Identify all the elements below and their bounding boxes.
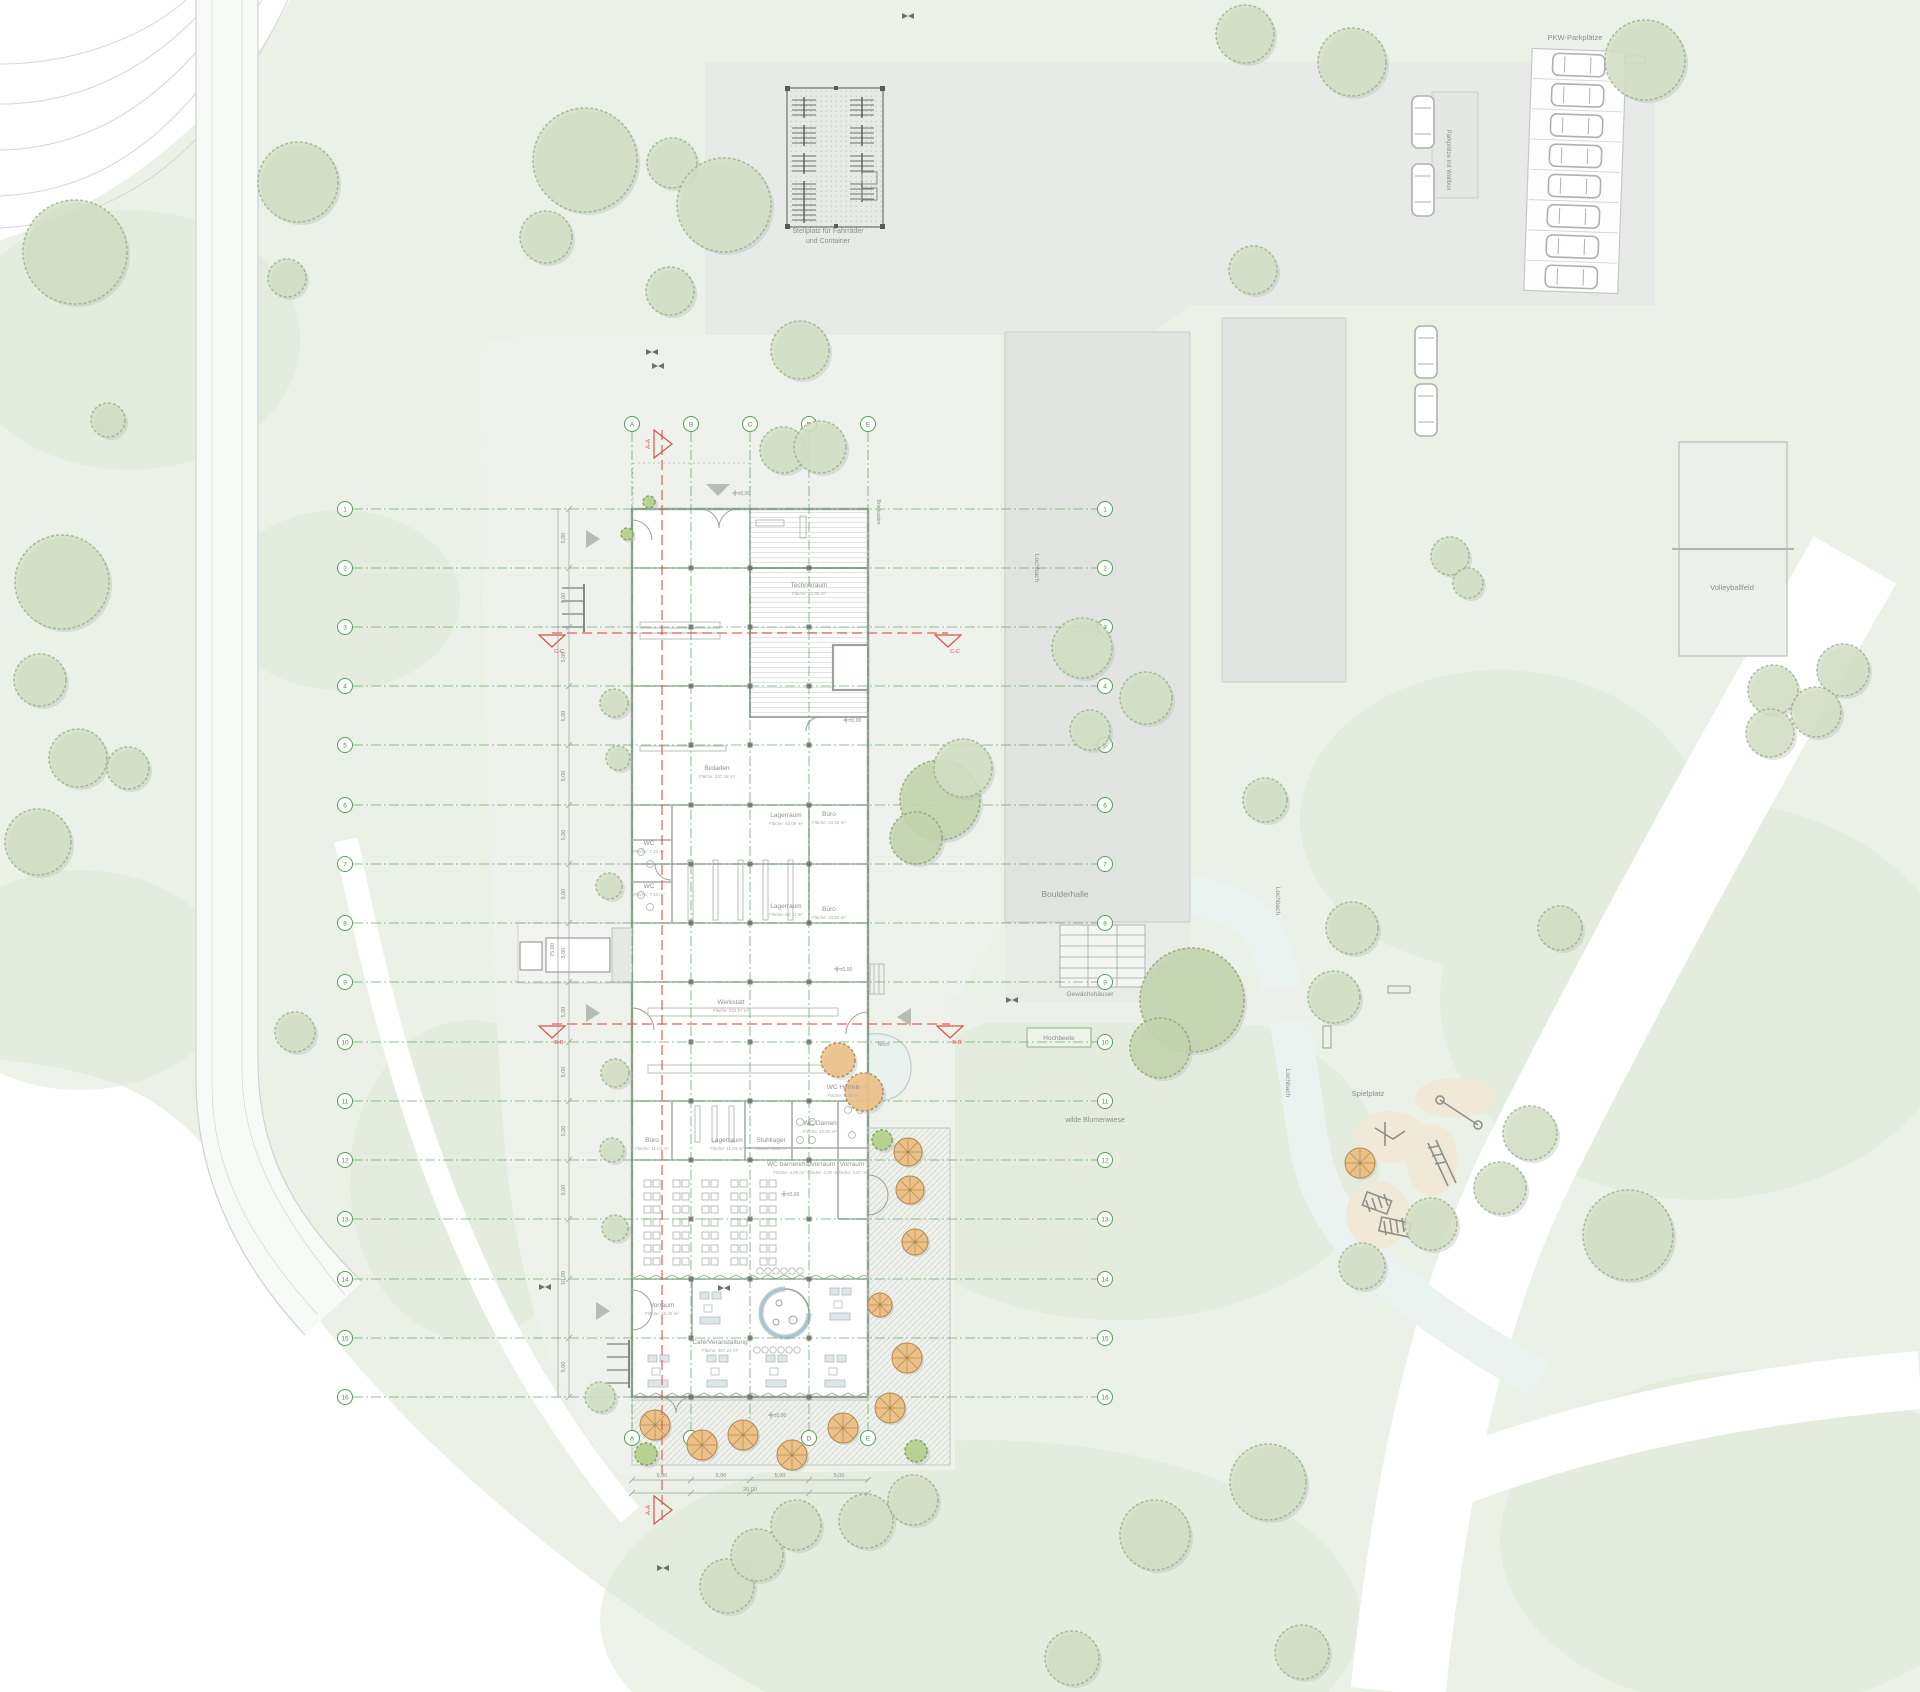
column-node: [807, 921, 812, 926]
column-node: [807, 1277, 812, 1282]
grid-bubble-label: 6: [343, 802, 347, 809]
tree: [1605, 20, 1685, 100]
tree: [934, 739, 992, 797]
volleyball-field: [1672, 442, 1794, 656]
grid-bubble-label: 6: [1103, 802, 1107, 809]
tree: [520, 211, 572, 263]
tree: [1120, 672, 1172, 724]
tree: [1326, 902, 1378, 954]
tree: [1748, 665, 1798, 715]
dimension-label: 5,00: [561, 771, 567, 782]
grid-bubble-label: 13: [341, 1216, 349, 1223]
column-node: [748, 921, 753, 926]
grid-bubble-label: 12: [1101, 1157, 1109, 1164]
grid-bubble-label: 16: [1101, 1394, 1109, 1401]
tree: [1243, 778, 1287, 822]
column-node: [748, 1158, 753, 1163]
column-node: [689, 1158, 694, 1163]
room-area-label: Fläche: 367,24 m²: [702, 1348, 739, 1353]
table: [766, 1380, 786, 1387]
section-label: A-A: [646, 1505, 652, 1515]
grid-bubble-label: 11: [342, 1098, 349, 1105]
table: [719, 1355, 728, 1362]
column-node: [689, 980, 694, 985]
ground-layer: [0, 0, 1920, 1692]
elevation-label: ±0,00: [849, 718, 862, 724]
dimension-label: 5,00: [561, 1126, 567, 1137]
table: [652, 1368, 660, 1375]
technik-cell: [833, 645, 868, 690]
shrub: [621, 528, 633, 540]
tree: [596, 873, 622, 899]
tree: [1045, 1631, 1099, 1685]
dimension-label: 5,00: [657, 1473, 668, 1479]
tree: [1746, 709, 1794, 757]
room-label: Vorraum: [650, 1302, 675, 1309]
tree: [275, 1012, 315, 1052]
column-node: [807, 862, 812, 867]
room-label: Büro: [645, 1137, 659, 1144]
room-area-label: Fläche: 237,18 m²: [699, 774, 736, 779]
orange-tree: [845, 1073, 883, 1111]
grid-bubble-label: 1: [343, 506, 347, 513]
column-node: [807, 743, 812, 748]
room-label: WC barrierefrei: [767, 1161, 811, 1168]
car-icon: [1548, 174, 1601, 198]
car-icon: [1412, 96, 1434, 148]
dimension-label: 5,00: [561, 1007, 567, 1018]
column-node: [807, 566, 812, 571]
room-label: WC Damen: [803, 1120, 837, 1127]
table: [660, 1355, 669, 1362]
tree: [794, 421, 846, 473]
room-area-label: Fläche: 2,87 m²: [836, 1170, 868, 1175]
table: [648, 1355, 657, 1362]
site-label: wilde Blumenwiese: [1064, 1117, 1125, 1124]
room-area-label: Fläche: 7,13 m²: [633, 892, 665, 897]
tree: [1318, 28, 1386, 96]
column-node: [748, 684, 753, 689]
column-node: [748, 743, 753, 748]
column-node: [748, 1336, 753, 1341]
site-label: Lochbach: [1274, 887, 1281, 916]
dimension-label: 5,00: [561, 948, 567, 959]
bike-shelter: [785, 86, 885, 229]
room-label: Lagerraum: [770, 812, 801, 819]
room-label: Technikraum: [791, 582, 828, 589]
column-node: [748, 1099, 753, 1104]
column-node: [807, 1336, 812, 1341]
tree: [1130, 1018, 1190, 1078]
room-area-label: Fläche: 12,82 m²: [803, 1129, 837, 1134]
column-node: [748, 1277, 753, 1282]
dimension-label: 5,00: [561, 593, 567, 604]
room-area-label: Fläche: 3,20 m²: [807, 1170, 839, 1175]
table: [700, 1317, 720, 1324]
column-node: [807, 1395, 812, 1400]
car-icon: [1412, 164, 1434, 216]
tree: [1229, 246, 1277, 294]
grid-bubble-label: 10: [1101, 1039, 1109, 1046]
dimension-label: 5,00: [561, 1067, 567, 1078]
tree: [1474, 1162, 1526, 1214]
grid-bubble-label: E: [866, 421, 871, 428]
tree: [1503, 1106, 1557, 1160]
dimension-label: 5,00: [561, 889, 567, 900]
grid-bubble-label: 4: [343, 683, 347, 690]
column-node: [748, 566, 753, 571]
grid-bubble-label: 7: [343, 861, 347, 868]
room-label: WC: [644, 883, 655, 890]
column-node: [748, 862, 753, 867]
tree: [771, 1500, 821, 1550]
tree: [49, 729, 107, 787]
column-node: [689, 803, 694, 808]
room-area-label: Fläche: 9,38 m²: [827, 1093, 859, 1098]
dimension-label: 5,00: [561, 1185, 567, 1196]
grid-bubble-label: 2: [1103, 565, 1107, 572]
elevation-label: ±0,00: [840, 967, 853, 973]
site-label: Hochbeete: [1043, 1035, 1075, 1042]
tree: [585, 1382, 615, 1412]
room-label: Lagerraum: [711, 1137, 742, 1144]
column-node: [689, 625, 694, 630]
car-icon: [1545, 265, 1598, 289]
grid-bubble-label: D: [807, 1435, 812, 1442]
table: [825, 1380, 845, 1387]
car-icon: [1550, 114, 1603, 138]
grid-bubble-label: 14: [1101, 1276, 1109, 1283]
room-label: Werkstatt: [717, 999, 745, 1006]
car-icon: [1549, 144, 1602, 168]
grid-bubble-label: 3: [343, 624, 347, 631]
tree: [1070, 710, 1110, 750]
room-area-label: Fläche: 7,13 m²: [633, 849, 665, 854]
car-icon: [1552, 53, 1605, 77]
room-label: Büro: [822, 906, 836, 913]
room-label: Stuhllager: [756, 1137, 786, 1144]
table: [837, 1355, 846, 1362]
site-label: Spielplatz: [1352, 1089, 1385, 1098]
grid-bubble-label: 9: [1103, 979, 1107, 986]
tree: [5, 809, 71, 875]
dimension-label: 5,00: [716, 1473, 727, 1479]
shrub: [872, 1130, 892, 1150]
tree: [888, 1475, 938, 1525]
site-label: Briefkasten: [875, 499, 881, 524]
section-label: B-B: [952, 1040, 962, 1046]
grid-bubble-label: 7: [1103, 861, 1107, 868]
car-icon: [1415, 326, 1437, 378]
column-node: [807, 803, 812, 808]
dimension-label: 5,00: [561, 830, 567, 841]
tree: [677, 158, 771, 252]
site-plan-page: 1122334455667788991010111112121313141415…: [0, 0, 1920, 1692]
room-label: Vorraum: [811, 1161, 836, 1168]
room-area-label: Fläche: 5,32 m²: [755, 1146, 787, 1151]
dimension-label: 5,00: [561, 533, 567, 544]
table: [770, 1368, 778, 1375]
column-node: [807, 1217, 812, 1222]
column-node: [689, 743, 694, 748]
elevation-label: ±0,00: [787, 1192, 800, 1198]
grid-bubble-label: 16: [341, 1394, 349, 1401]
room-area-label: Fläche: 23,82 m²: [812, 820, 846, 825]
tree: [601, 1059, 629, 1087]
dimension-total-label: 75,00: [550, 943, 556, 957]
column-node: [748, 625, 753, 630]
table: [704, 1305, 712, 1312]
shrub: [643, 496, 655, 508]
column-node: [807, 625, 812, 630]
dimension-label: 10,00: [561, 1271, 567, 1285]
elevation-label: ±0,00: [738, 491, 751, 497]
table: [829, 1368, 837, 1375]
column-node: [748, 980, 753, 985]
dimension-label: 5,00: [775, 1473, 786, 1479]
tree: [14, 654, 66, 706]
tree: [91, 403, 125, 437]
grid-bubble-label: 4: [1103, 683, 1107, 690]
tree: [268, 259, 306, 297]
orange-tree: [821, 1043, 855, 1077]
grid-bubble-label: B: [689, 421, 693, 428]
table: [766, 1355, 775, 1362]
grid-bubble-label: 8: [1103, 920, 1107, 927]
room-label: Vorraum: [840, 1161, 865, 1168]
table: [700, 1292, 709, 1299]
column-node: [689, 1099, 694, 1104]
dimension-label: 20,00: [743, 1487, 757, 1493]
grid-bubble-label: 9: [343, 979, 347, 986]
room-area-label: Fläche: 4,36 m²: [773, 1170, 805, 1175]
tree: [646, 267, 694, 315]
grid-bubble-label: 12: [341, 1157, 349, 1164]
car-icon: [1551, 83, 1604, 107]
column-node: [689, 1395, 694, 1400]
column-node: [748, 803, 753, 808]
cafe-bar: [761, 1289, 809, 1337]
car-icon: [1546, 235, 1599, 259]
grid-bubble-label: C: [748, 421, 753, 428]
site-label: und Container: [806, 238, 851, 245]
section-label: C-C: [950, 649, 960, 655]
site-label: Volleyballfeld: [1710, 583, 1754, 592]
shrub: [635, 1443, 657, 1465]
grid-bubble-label: 10: [341, 1039, 349, 1046]
room-label: Lagerraum: [770, 903, 801, 910]
tree: [890, 812, 942, 864]
tree: [1583, 1190, 1673, 1280]
dimension-label: 5,00: [561, 711, 567, 722]
tree: [23, 200, 127, 304]
grid-bubble-label: 13: [1101, 1216, 1109, 1223]
site-plan-canvas: 1122334455667788991010111112121313141415…: [0, 0, 1920, 1692]
site-label: Parkplätze mit Wallbox: [1445, 130, 1451, 191]
tree: [1791, 687, 1841, 737]
grid-bubble-label: 15: [341, 1335, 349, 1342]
tree: [1275, 1625, 1329, 1679]
car-icon: [1415, 384, 1437, 436]
section-label: B-B: [554, 1040, 564, 1046]
tree: [533, 108, 637, 212]
tree: [600, 1138, 624, 1162]
table: [830, 1313, 850, 1320]
tree: [107, 747, 149, 789]
column-node: [689, 684, 694, 689]
east-building: [1222, 318, 1346, 682]
grid-bubble-label: 15: [1101, 1335, 1109, 1342]
column-node: [689, 566, 694, 571]
column-node: [689, 1277, 694, 1282]
tree: [1308, 971, 1360, 1023]
section-label: A-A: [646, 439, 652, 449]
tree: [1120, 1500, 1190, 1570]
column-node: [807, 1099, 812, 1104]
column-node: [748, 1395, 753, 1400]
column-node: [748, 1040, 753, 1045]
grid-bubble-label: 14: [341, 1276, 349, 1283]
column-node: [689, 921, 694, 926]
column-node: [807, 684, 812, 689]
site-label: Lochbach: [1284, 1069, 1291, 1098]
column-node: [748, 1217, 753, 1222]
room-label: WC: [644, 840, 655, 847]
tree: [1230, 1444, 1306, 1520]
room-label: WC Herren: [827, 1084, 860, 1091]
tree: [606, 746, 630, 770]
dimension-label: 5,00: [561, 1362, 567, 1373]
room-label: Café/Veranstaltung: [692, 1339, 748, 1346]
site-label: PKW-Parkplätze: [1548, 33, 1603, 42]
site-label: Lochbach: [1033, 554, 1040, 583]
table: [842, 1288, 851, 1295]
grid-bubble-label: A: [630, 1435, 635, 1442]
table: [711, 1368, 719, 1375]
tree: [1405, 1198, 1457, 1250]
room-area-label: Fläche: 51,06 m²: [792, 591, 826, 596]
column-node: [807, 980, 812, 985]
column-node: [689, 862, 694, 867]
tree: [602, 1215, 628, 1241]
tree: [600, 689, 628, 717]
grid-bubble-label: 5: [343, 742, 347, 749]
column-node: [807, 1040, 812, 1045]
tree: [15, 535, 109, 629]
tree: [1538, 906, 1582, 950]
tree: [1052, 618, 1112, 678]
elevation-label: ±0,00: [774, 1413, 787, 1419]
room-area-label: Fläche: 231,97 m²: [713, 1008, 750, 1013]
room-label: Büro: [822, 811, 836, 818]
site-label: Gewächshäuser: [1067, 991, 1115, 998]
dimension-label: 5,00: [834, 1473, 845, 1479]
table: [830, 1288, 839, 1295]
room-area-label: Fläche: 62,71 m²: [769, 912, 803, 917]
dimension-label: 5,00: [561, 652, 567, 663]
tree: [771, 321, 829, 379]
grid-bubble-label: 11: [1102, 1098, 1109, 1105]
tree: [839, 1494, 893, 1548]
table: [648, 1380, 668, 1387]
loading-dock: [612, 928, 632, 982]
shrub: [905, 1440, 927, 1462]
column-node: [689, 1040, 694, 1045]
small-north-building: [1432, 92, 1478, 198]
room-label: Bioladen: [704, 765, 730, 772]
tree: [1453, 568, 1483, 598]
site-label: Boulderhalle: [1041, 889, 1089, 899]
grid-bubble-label: 8: [343, 920, 347, 927]
grid-bubble-label: 1: [1103, 506, 1107, 513]
room-area-label: Fläche: 10,42 m²: [645, 1311, 679, 1316]
site-label: Teich: [877, 1042, 890, 1048]
grid-bubble-label: 2: [343, 565, 347, 572]
table: [834, 1301, 842, 1308]
room-area-label: Fläche: 11,04 m²: [710, 1146, 744, 1151]
table: [825, 1355, 834, 1362]
tree: [1339, 1243, 1385, 1289]
grid-bubble-label: E: [866, 1435, 871, 1442]
table: [707, 1355, 716, 1362]
column-node: [689, 1217, 694, 1222]
table: [778, 1355, 787, 1362]
car-icon: [1547, 205, 1600, 229]
room-area-label: Fläche: 11,04 m²: [635, 1146, 669, 1151]
tree: [258, 142, 338, 222]
room-area-label: Fläche: 62,08 m²: [769, 821, 803, 826]
tree: [1216, 5, 1274, 63]
site-label: Stellplatz für Fahrräder: [792, 228, 864, 235]
table: [712, 1292, 721, 1299]
table: [707, 1380, 727, 1387]
grid-bubble-label: A: [630, 421, 635, 428]
room-area-label: Fläche: 23,82 m²: [812, 915, 846, 920]
